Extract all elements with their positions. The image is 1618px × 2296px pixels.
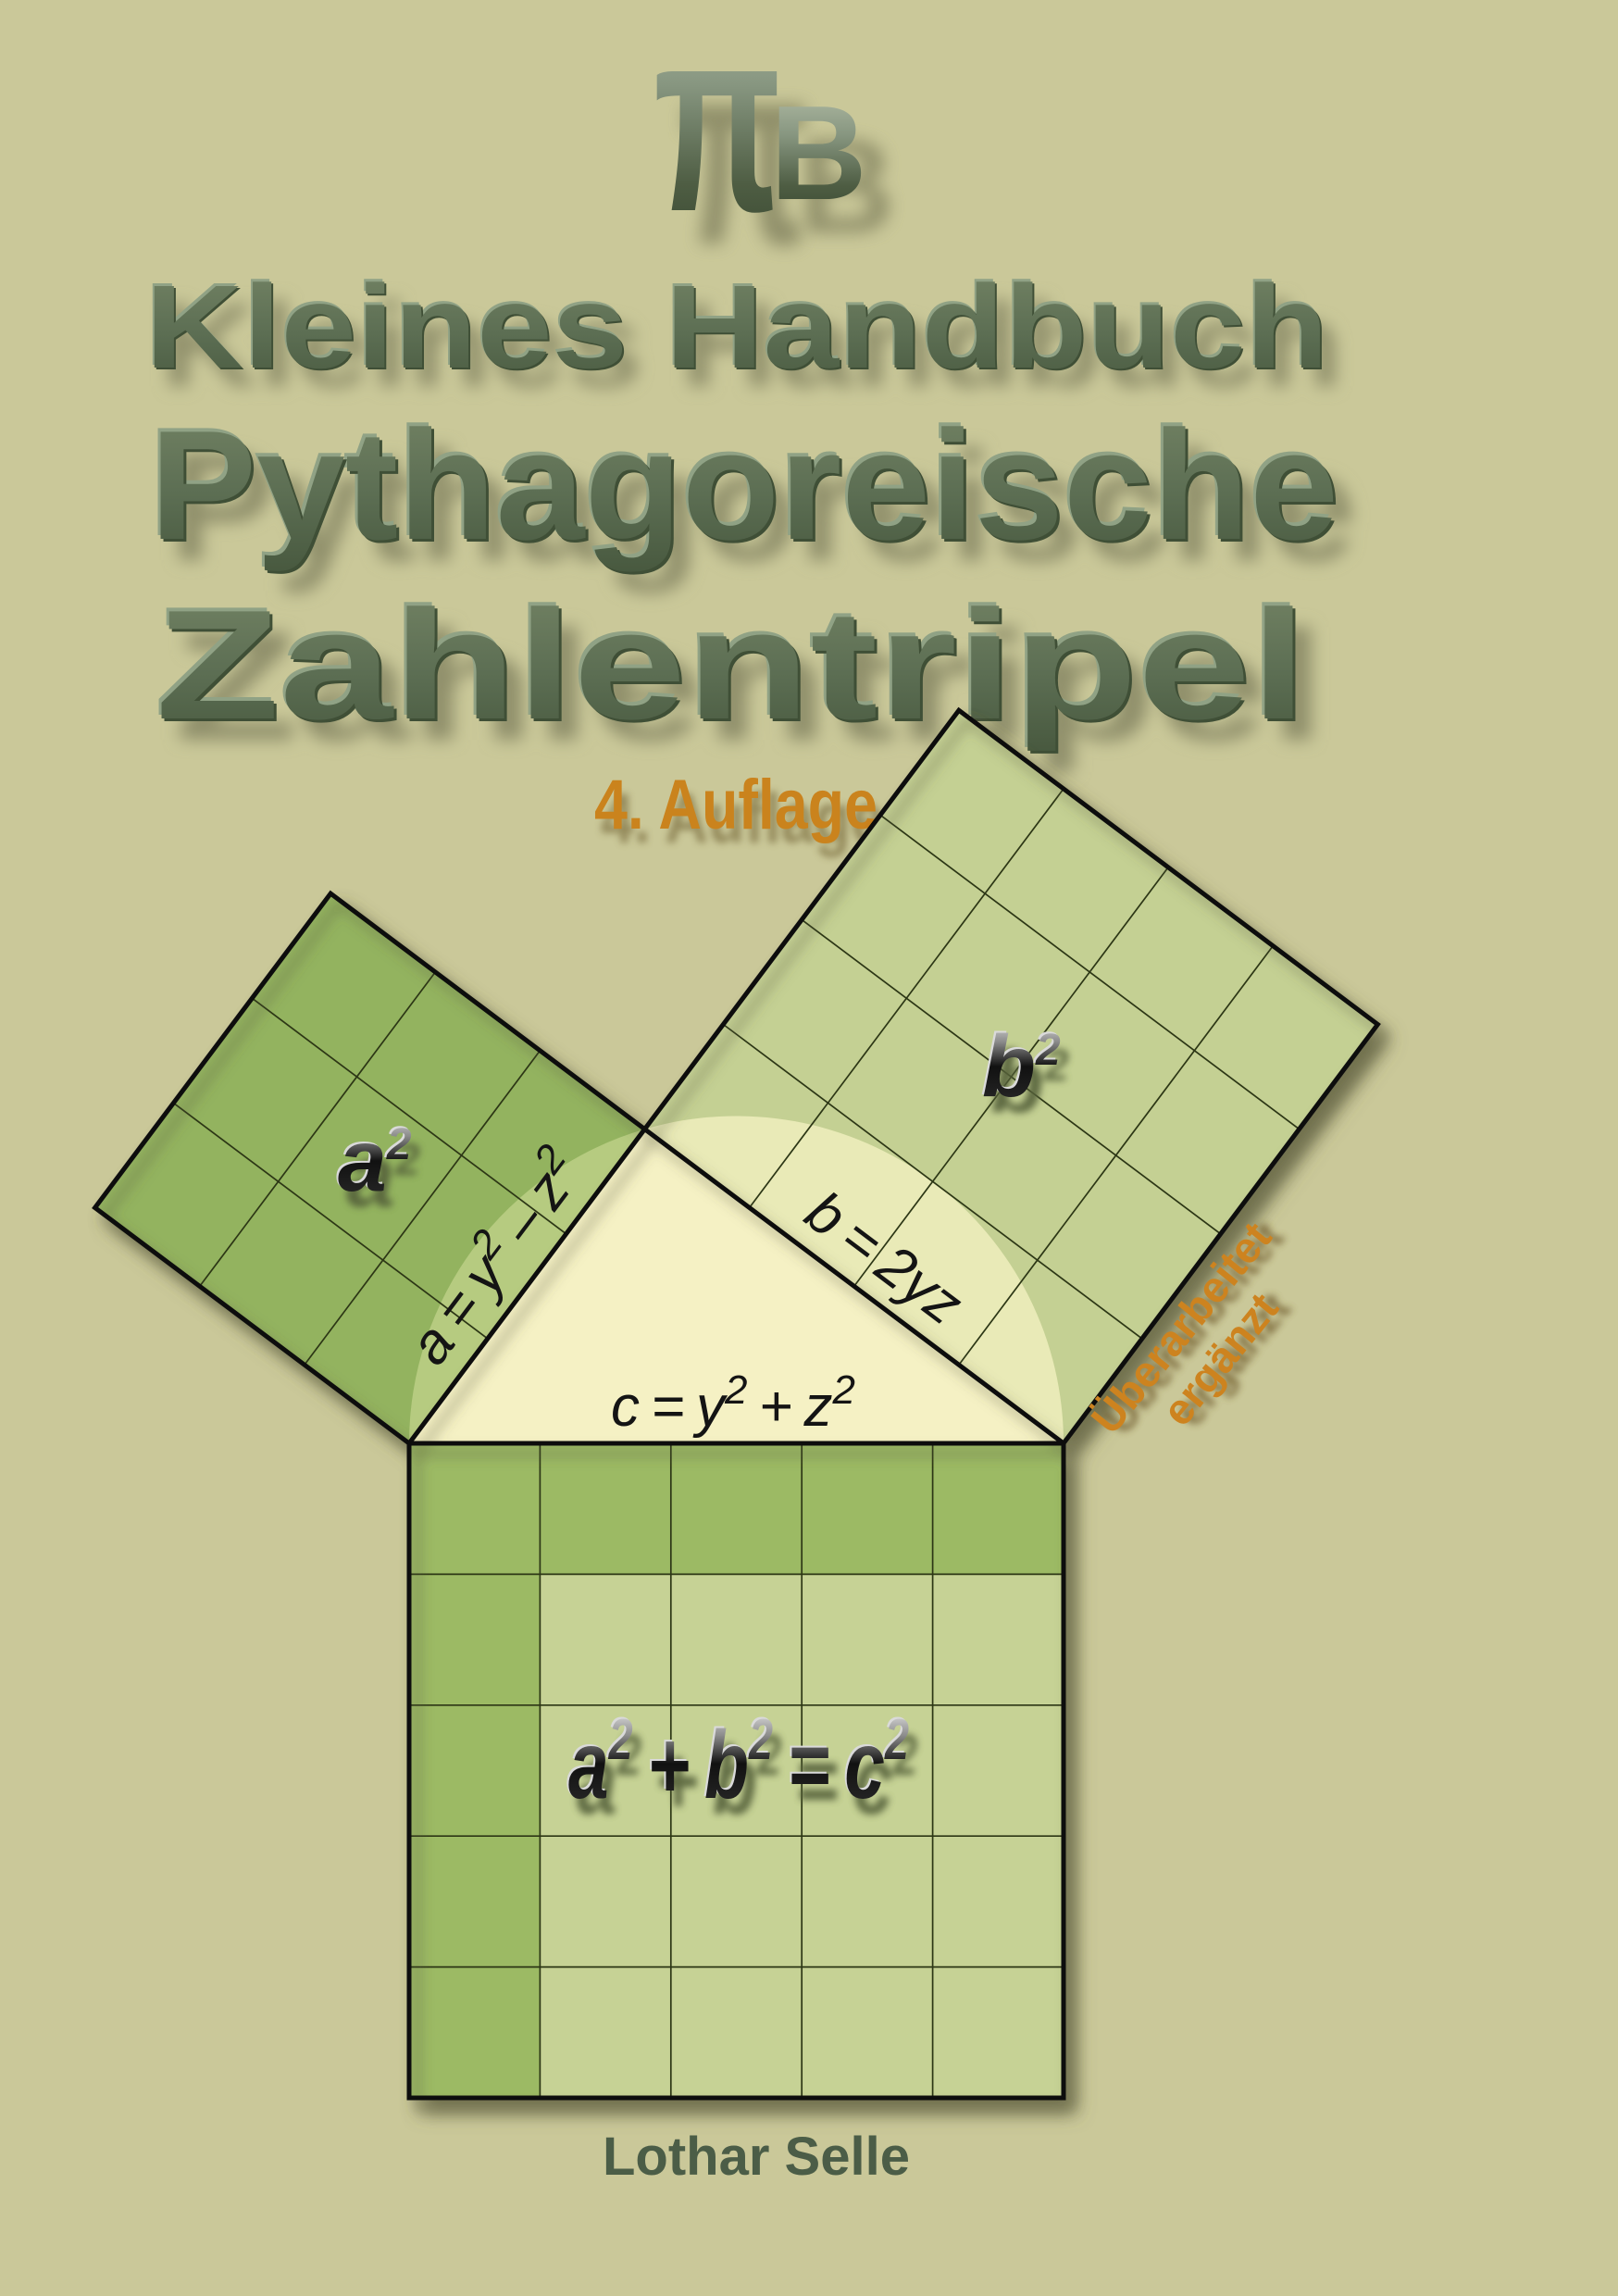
svg-text:Pythagoreische: Pythagoreische (150, 398, 1338, 572)
svg-text:Kleines Handbuch: Kleines Handbuch (145, 261, 1328, 393)
svg-text:π: π (653, 0, 781, 267)
svg-text:Zahlentripel: Zahlentripel (156, 578, 1307, 752)
svg-text:4. Auflage: 4. Auflage (594, 766, 877, 844)
svg-text:B: B (770, 78, 867, 228)
svg-text:Lothar Selle: Lothar Selle (603, 2127, 910, 2187)
